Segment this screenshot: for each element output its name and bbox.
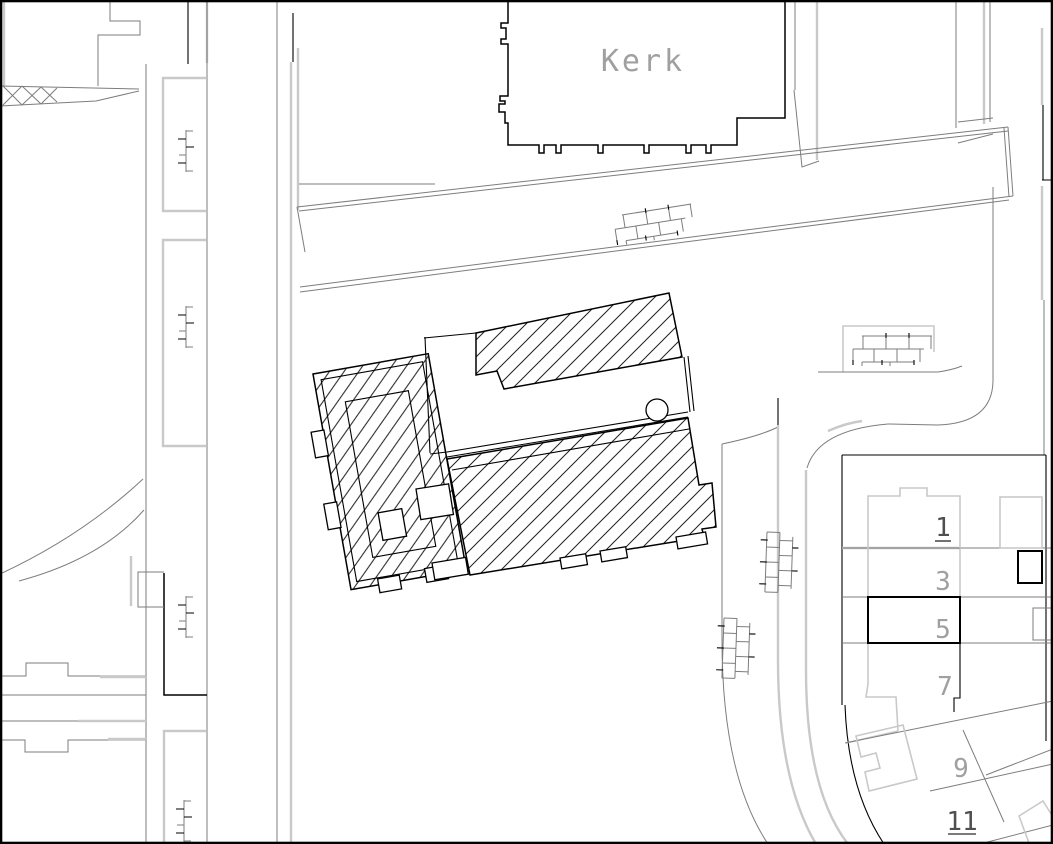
house-number-1: 1 [935,513,951,543]
subject-building-complex [301,293,716,600]
street-edge [722,444,768,844]
cadastral-site-plan: Kerk [0,0,1053,844]
street-edge-bold [845,705,884,844]
ladder-tick-symbol [178,596,194,638]
corner-curve-light [828,421,862,431]
house-number-11: 11 [946,807,977,837]
walled-parcel [818,326,962,372]
houses-9-11-block: 9 11 [845,701,1053,844]
topleft-building-outline [98,2,140,86]
house-number-7: 7 [937,672,953,702]
road-top-edge [297,127,1008,211]
plan-canvas: Kerk [0,0,1053,844]
road-end-cap [1004,127,1013,197]
parcel-4 [164,731,206,844]
main-road-band [297,127,1013,292]
north-wing-hatched [476,293,682,389]
parcel-2 [163,240,206,446]
house-number-9: 9 [953,754,969,784]
drawing-frame [1,1,1052,843]
outbuilding-bold [1018,551,1042,583]
house-number-5: 5 [935,615,951,645]
corner-curve [722,427,778,444]
top-right-street [807,0,1052,468]
south-wing-hatched [447,418,716,575]
bottom-left-street [0,663,146,752]
courtyard-east-wall [684,356,694,412]
parcel-3-annex [138,572,164,607]
outbuilding-light [1000,497,1042,548]
street-corner-curve [807,187,993,468]
ladder-tick-symbol [178,306,194,348]
ladder-tick-symbol [178,130,194,172]
ladder-tick-symbol [176,800,192,842]
house-7-edge [954,643,960,712]
east-edge-bold [1042,105,1052,180]
block-diagonal [845,701,1053,743]
church: Kerk [499,2,819,167]
outbuilding-east [1033,608,1053,640]
street-edge-light [778,425,816,844]
annex [378,575,402,593]
circle-tree-symbol [646,399,668,421]
road-bottom-edge [300,196,1013,292]
houses-block: 1 3 5 7 [842,455,1053,743]
church-label: Kerk [601,44,685,79]
row-diagonal [930,764,1053,791]
row-diagonal [980,825,1053,844]
right-street [716,398,884,844]
road-curve-inner [19,510,144,581]
corner-building [1019,801,1053,843]
parcel-base-line [818,366,962,372]
parcel-1 [163,78,206,211]
crossed-band [0,86,139,106]
road-left-edge [297,207,305,252]
annex [378,509,406,541]
brick-wall-symbol [613,201,696,246]
road-curve-outer [0,479,143,574]
brick-wall-symbol [853,333,932,366]
churchyard-parcel [794,2,819,167]
left-street-block [0,0,207,844]
house-number-3: 3 [935,567,951,597]
annex [416,484,453,520]
